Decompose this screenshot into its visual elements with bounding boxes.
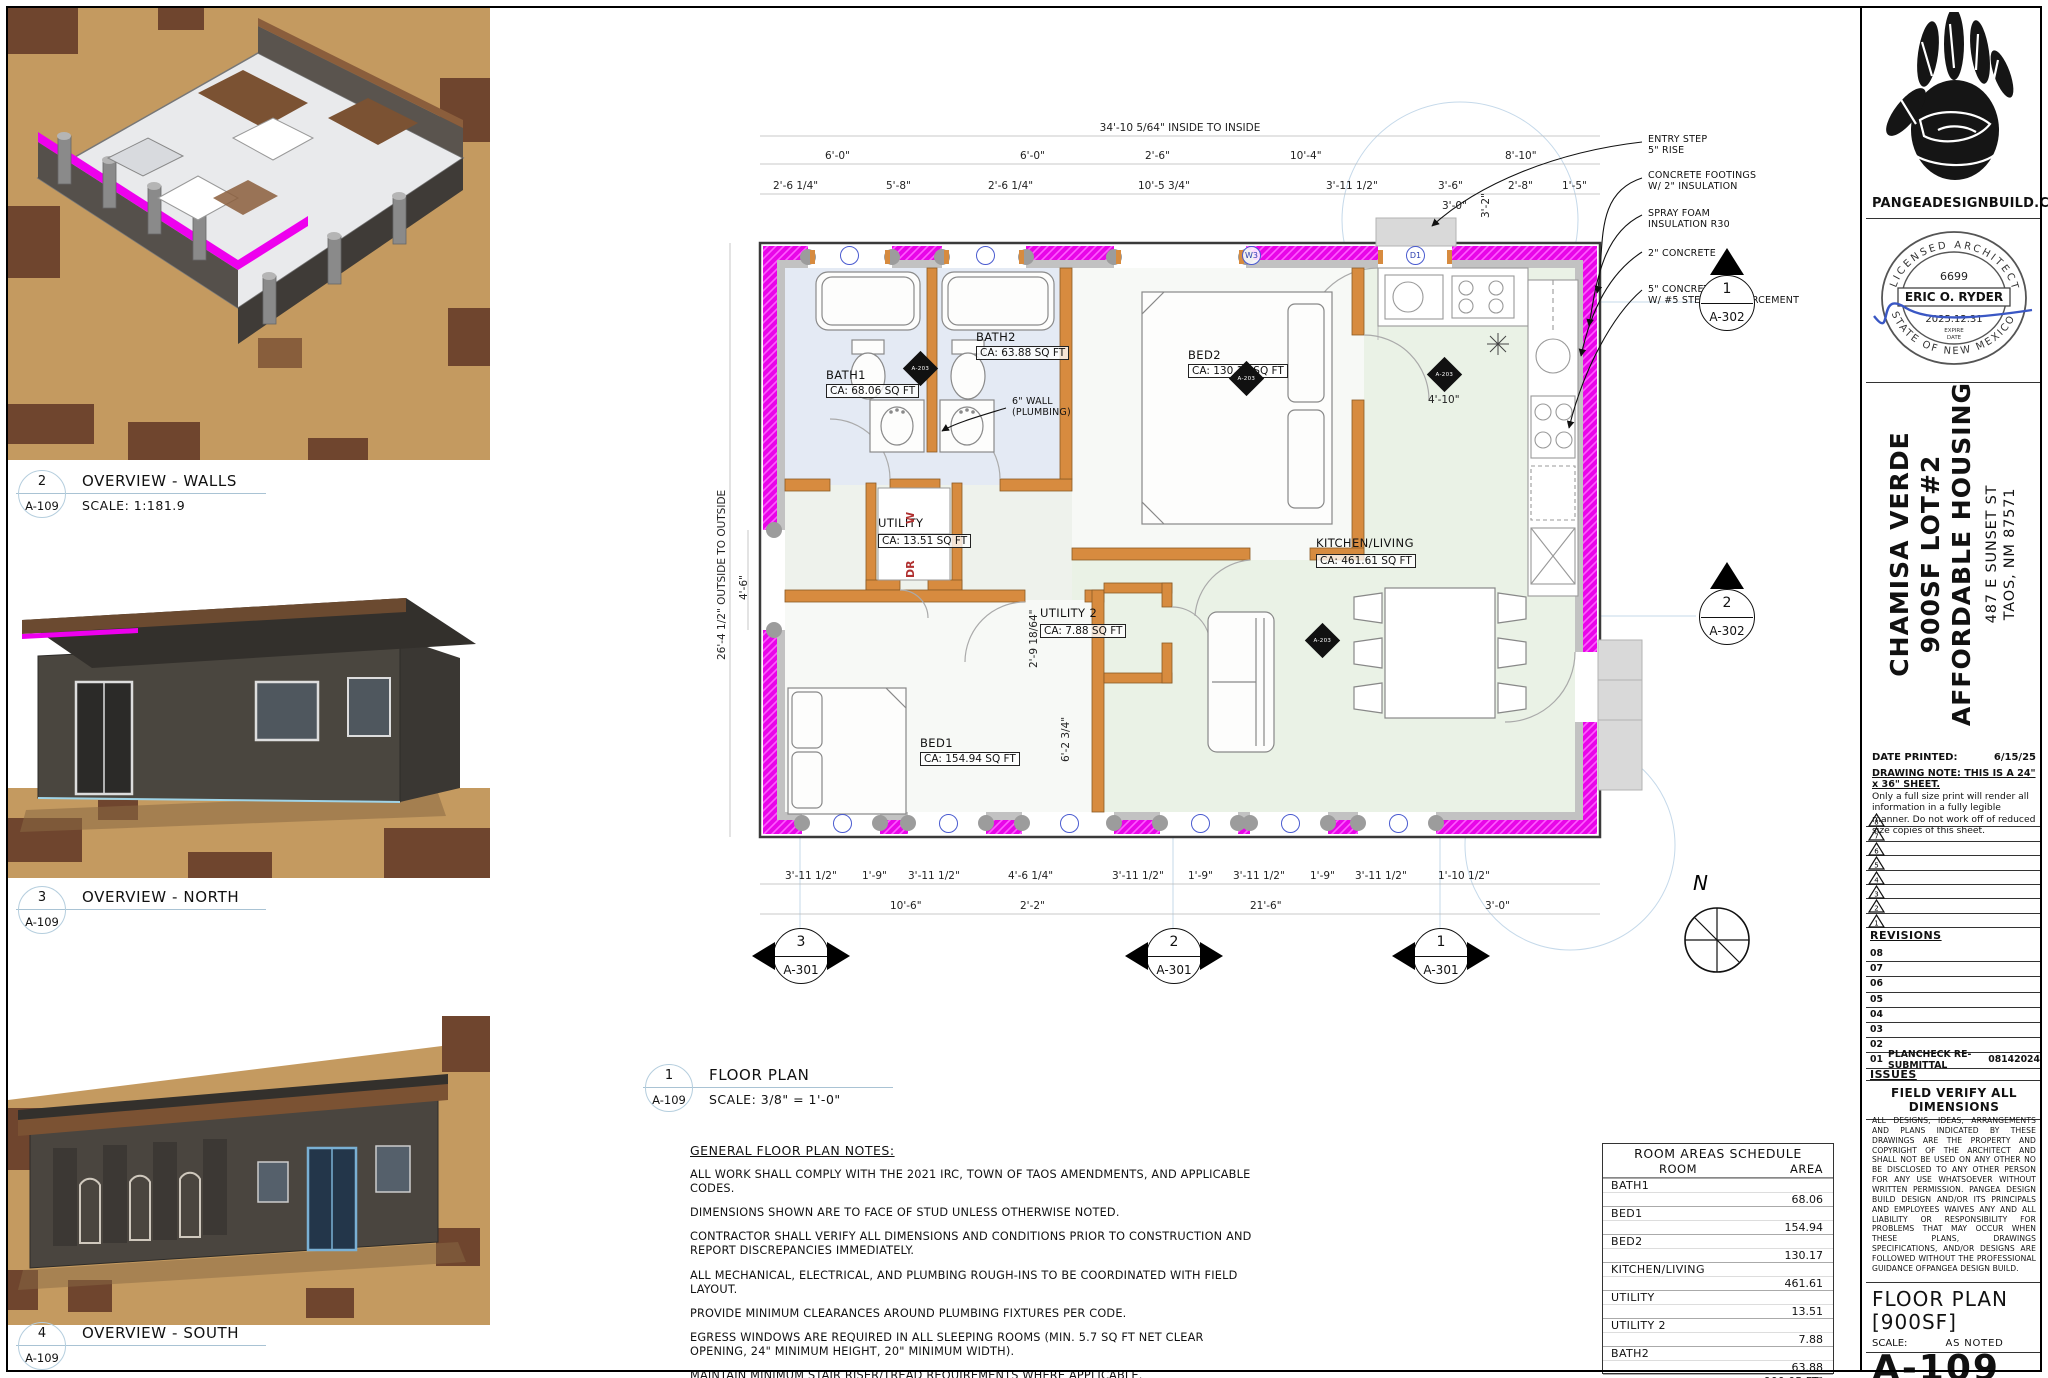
sheet-border	[6, 6, 2042, 1372]
schedule-total: 900.05 FT²	[1603, 1374, 1833, 1378]
drawing-sheet: 2 A-109 OVERVIEW - WALLS SCALE: 1:181.9 …	[0, 0, 2048, 1378]
